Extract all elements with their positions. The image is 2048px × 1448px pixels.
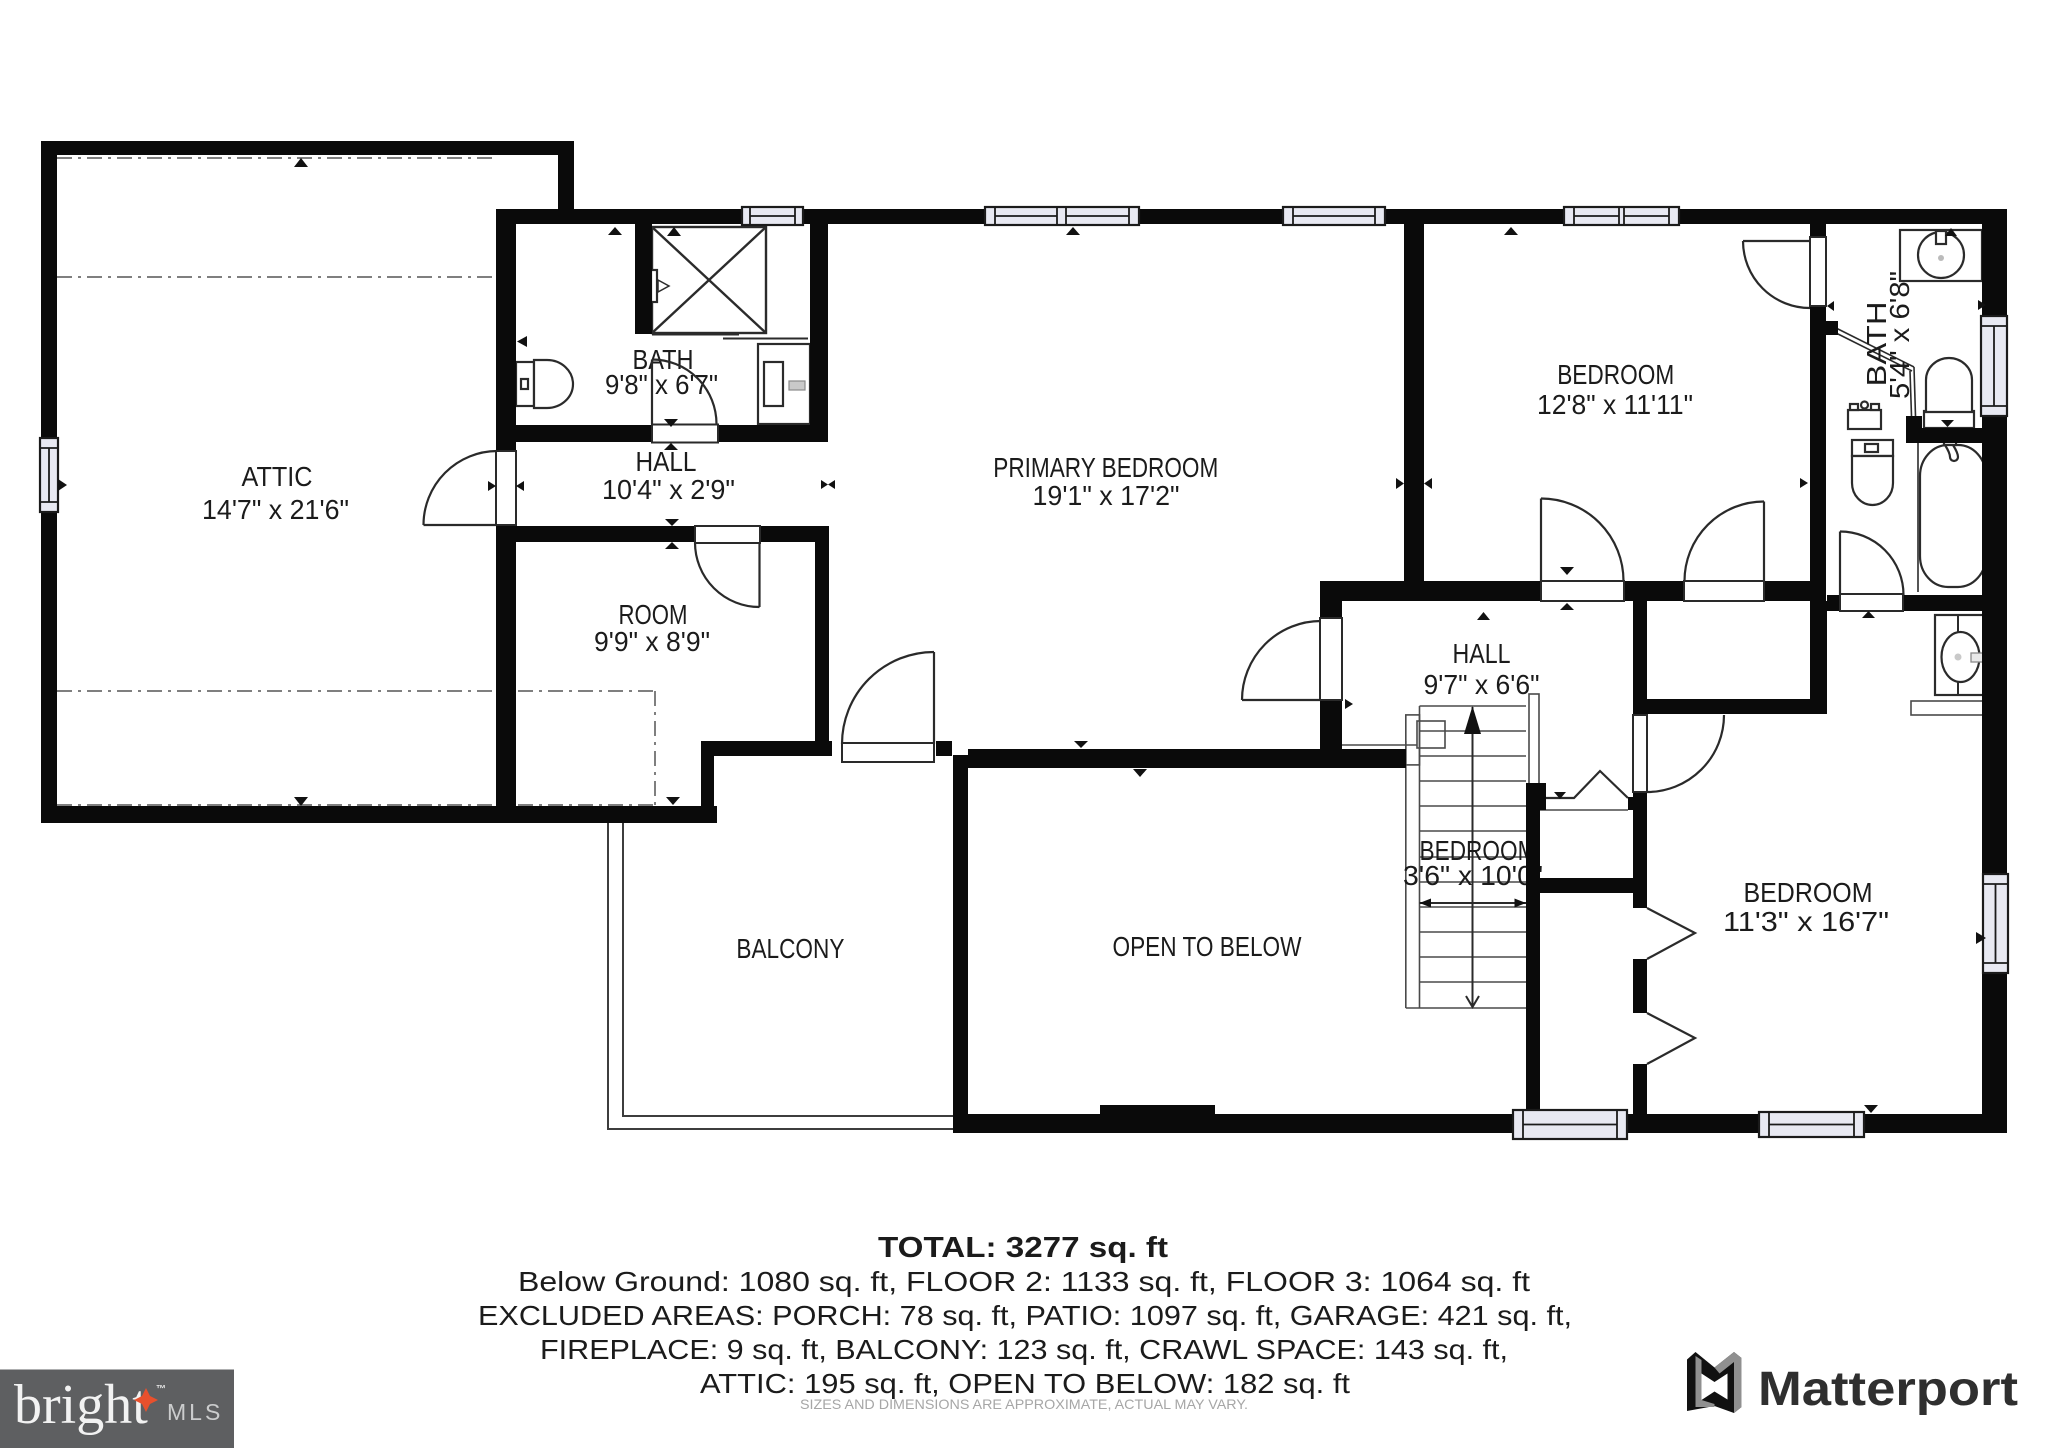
- svg-text:Matterport: Matterport: [1758, 1363, 2018, 1416]
- svg-text:9'9" x 8'9": 9'9" x 8'9": [594, 626, 710, 657]
- svg-text:FIREPLACE: 9 sq. ft, BALCONY:: FIREPLACE: 9 sq. ft, BALCONY: 123 sq. ft…: [540, 1334, 1508, 1365]
- svg-text:BEDROOM: BEDROOM: [1557, 359, 1674, 390]
- svg-text:HALL: HALL: [636, 446, 697, 477]
- svg-text:10'4" x 2'9": 10'4" x 2'9": [602, 474, 735, 505]
- svg-text:9'8" x 6'7": 9'8" x 6'7": [605, 369, 718, 400]
- svg-text:19'1" x 17'2": 19'1" x 17'2": [1033, 480, 1180, 511]
- svg-text:HALL: HALL: [1453, 638, 1511, 669]
- svg-text:BALCONY: BALCONY: [736, 933, 844, 964]
- svg-text:™: ™: [156, 1384, 166, 1395]
- svg-text:bright: bright: [14, 1374, 148, 1436]
- svg-text:MLS: MLS: [167, 1399, 223, 1425]
- svg-text:Below Ground: 1080 sq. ft, FLO: Below Ground: 1080 sq. ft, FLOOR 2: 1133…: [518, 1266, 1530, 1297]
- svg-text:OPEN TO BELOW: OPEN TO BELOW: [1113, 931, 1302, 962]
- svg-text:11'3" x 16'7": 11'3" x 16'7": [1723, 906, 1889, 937]
- svg-text:3'6" x 10'0": 3'6" x 10'0": [1403, 860, 1543, 891]
- svg-text:SIZES AND DIMENSIONS ARE APPRO: SIZES AND DIMENSIONS ARE APPROXIMATE, AC…: [800, 1396, 1248, 1412]
- svg-text:12'8" x 11'11": 12'8" x 11'11": [1537, 389, 1693, 420]
- svg-text:TOTAL: 3277 sq. ft: TOTAL: 3277 sq. ft: [878, 1232, 1168, 1264]
- svg-text:ATTIC: ATTIC: [242, 461, 313, 492]
- svg-text:EXCLUDED AREAS: PORCH: 78 sq.: EXCLUDED AREAS: PORCH: 78 sq. ft, PATIO:…: [478, 1300, 1572, 1331]
- svg-text:14'7" x 21'6": 14'7" x 21'6": [202, 494, 349, 525]
- svg-text:BEDROOM: BEDROOM: [1744, 877, 1873, 908]
- svg-text:5'4" x 6'8": 5'4" x 6'8": [1884, 271, 1915, 399]
- svg-text:PRIMARY BEDROOM: PRIMARY BEDROOM: [993, 452, 1218, 483]
- svg-text:9'7" x 6'6": 9'7" x 6'6": [1424, 669, 1540, 700]
- svg-text:ATTIC: 195 sq. ft, OPEN TO BEL: ATTIC: 195 sq. ft, OPEN TO BELOW: 182 sq…: [700, 1368, 1350, 1399]
